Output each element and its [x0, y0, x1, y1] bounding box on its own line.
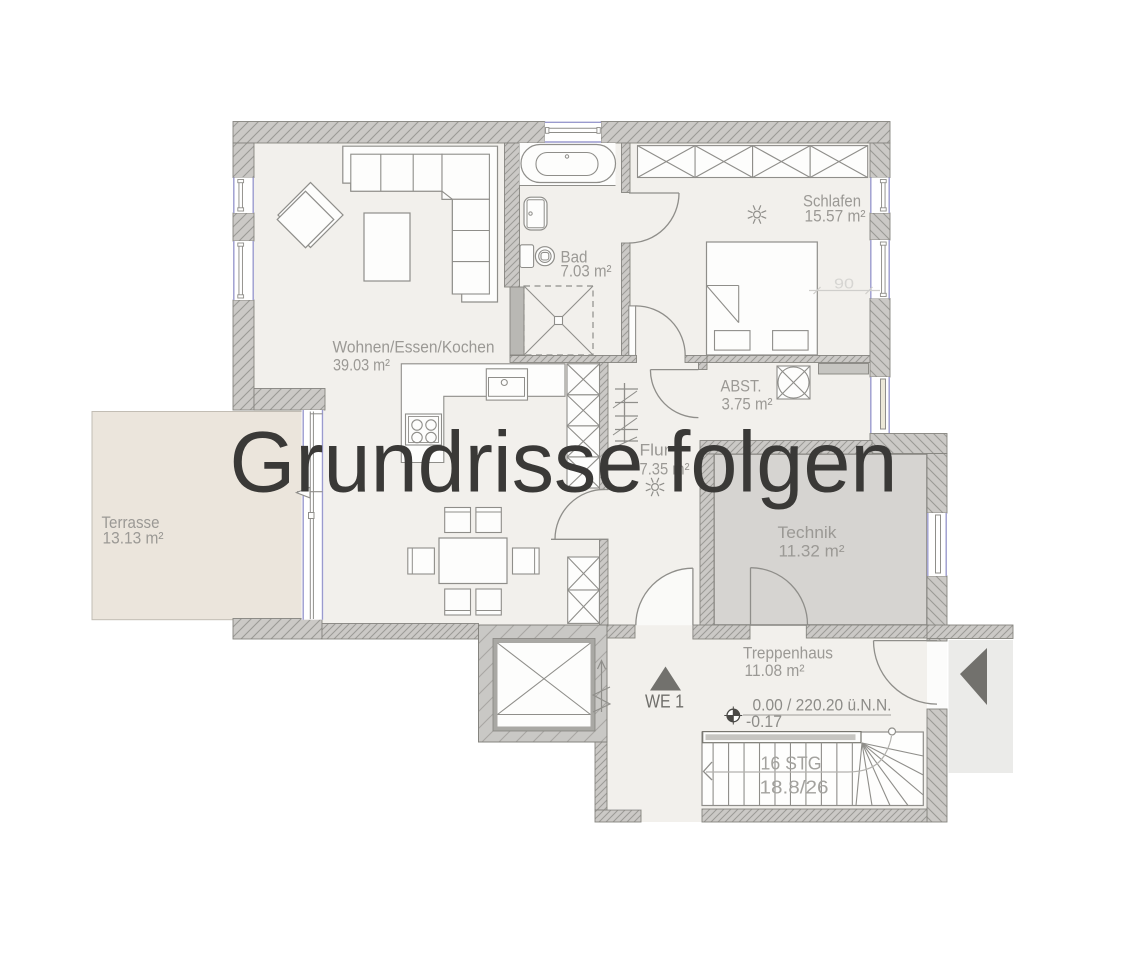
svg-text:13.13 m²: 13.13 m²: [103, 530, 164, 548]
svg-text:18.8/26: 18.8/26: [760, 777, 829, 798]
svg-text:Technik: Technik: [778, 523, 838, 542]
svg-text:WE 1: WE 1: [645, 692, 684, 712]
svg-text:16 STG: 16 STG: [761, 753, 822, 774]
svg-text:Wohnen/Essen/Kochen: Wohnen/Essen/Kochen: [333, 338, 495, 357]
svg-text:15.57 m²: 15.57 m²: [805, 207, 866, 226]
svg-text:Grundrisse folgen: Grundrisse folgen: [230, 415, 898, 511]
svg-text:7.03 m²: 7.03 m²: [561, 262, 612, 281]
svg-text:11.32 m²: 11.32 m²: [779, 542, 845, 561]
svg-text:90: 90: [834, 276, 854, 293]
svg-text:0.00 / 220.20 ü.N.N.: 0.00 / 220.20 ü.N.N.: [753, 697, 892, 715]
svg-text:3.75 m²: 3.75 m²: [722, 395, 773, 414]
svg-text:11.08 m²: 11.08 m²: [745, 661, 805, 680]
svg-text:-0.17: -0.17: [746, 713, 782, 731]
svg-text:Treppenhaus: Treppenhaus: [743, 644, 833, 663]
svg-text:39.03 m²: 39.03 m²: [333, 356, 390, 375]
svg-text:ABST.: ABST.: [721, 377, 762, 396]
